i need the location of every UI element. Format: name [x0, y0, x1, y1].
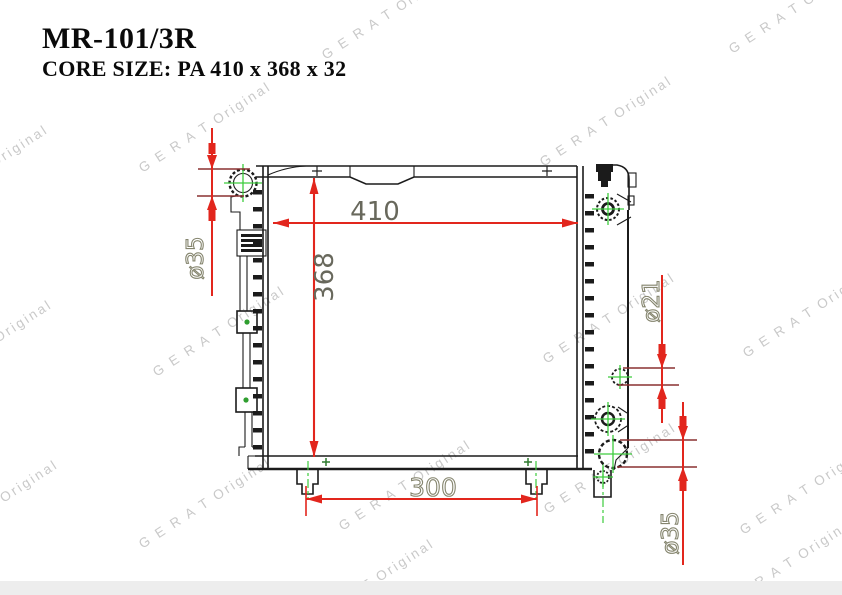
- dim-dia21-label: ø21: [639, 279, 665, 322]
- right-tank: [591, 164, 636, 523]
- dim-core-height-368: 368: [310, 178, 341, 457]
- dim-368-label: 368: [310, 252, 340, 302]
- top-band-marker-right: [542, 166, 552, 176]
- dim-mount-spacing-300: 300: [306, 473, 537, 516]
- top-band-marker-left: [312, 166, 322, 176]
- foot-port-crosshair: [593, 467, 613, 487]
- foot-port: [593, 467, 613, 487]
- dim-core-width-410: 410: [273, 197, 578, 228]
- bottom-band: [248, 456, 592, 469]
- dim-dia35-right-label: ø35: [658, 511, 684, 554]
- drain-plug-port: [591, 402, 627, 436]
- core-right-seam: [577, 166, 594, 470]
- radiator-technical-drawing: 410 368 300 ø35: [0, 0, 842, 595]
- dim-410-label: 410: [350, 197, 400, 227]
- catalog-page: G E R A T OriginalG E R A T OriginalG E …: [0, 0, 842, 595]
- right-seam-ticks: [585, 194, 594, 454]
- dim-300-label: 300: [409, 473, 457, 502]
- upper-port-crosshair: [592, 193, 624, 225]
- core-left-seam: [253, 166, 268, 470]
- band-screw-left: [322, 458, 330, 466]
- pressure-cap: [596, 164, 613, 187]
- top-tank-band: [256, 166, 577, 184]
- band-screw-right: [524, 458, 532, 466]
- mount-bracket-lower: [236, 388, 257, 412]
- upper-inlet-port: [592, 193, 631, 225]
- mounting-peg-left: [297, 461, 318, 500]
- dim-dia35-left-label: ø35: [183, 236, 209, 279]
- bottom-page-strip: [0, 581, 842, 595]
